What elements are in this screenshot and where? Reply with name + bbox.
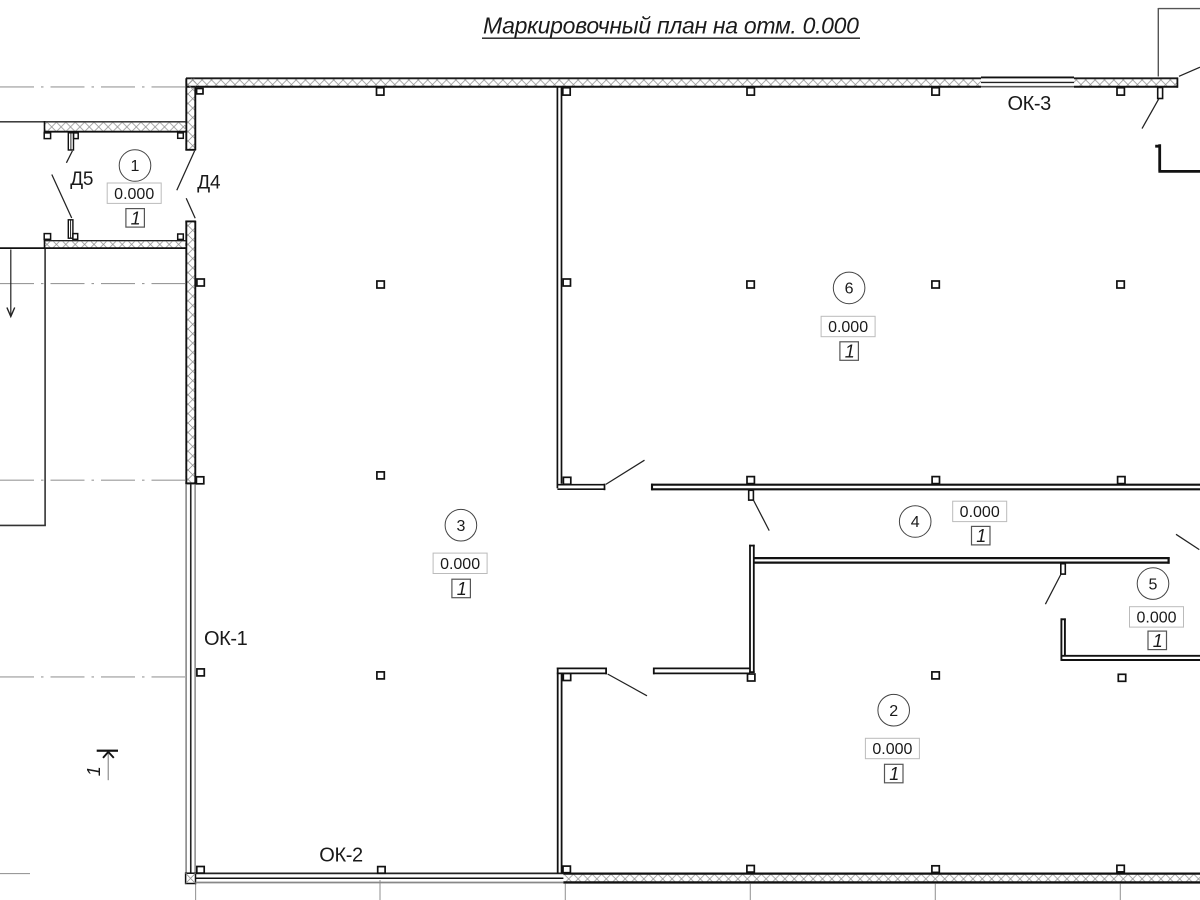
svg-text:3: 3 [456,518,465,535]
svg-text:Маркировочный план на отм. 0.0: Маркировочный план на отм. 0.000 [483,13,859,39]
svg-text:6: 6 [845,281,854,298]
svg-text:1: 1 [131,208,141,228]
svg-text:5: 5 [1149,576,1158,593]
svg-text:ОК-1: ОК-1 [204,628,248,650]
svg-text:1: 1 [84,766,104,776]
svg-text:ОК-2: ОК-2 [319,844,363,866]
svg-text:1: 1 [131,158,140,175]
svg-text:4: 4 [911,514,920,531]
svg-text:1: 1 [845,342,855,362]
svg-text:0.000: 0.000 [1136,610,1176,627]
svg-text:Д5: Д5 [70,169,93,190]
svg-text:0.000: 0.000 [440,556,480,573]
svg-text:0.000: 0.000 [960,504,1000,521]
svg-text:1: 1 [457,579,467,599]
svg-text:1: 1 [889,764,899,784]
svg-text:1: 1 [976,526,986,546]
svg-text:Д4: Д4 [197,172,221,193]
svg-text:ОК-3: ОК-3 [1008,93,1052,115]
svg-text:0.000: 0.000 [872,741,912,758]
svg-text:0.000: 0.000 [114,186,154,203]
svg-text:1: 1 [1153,631,1163,651]
svg-text:2: 2 [889,703,898,720]
svg-text:0.000: 0.000 [828,319,868,336]
